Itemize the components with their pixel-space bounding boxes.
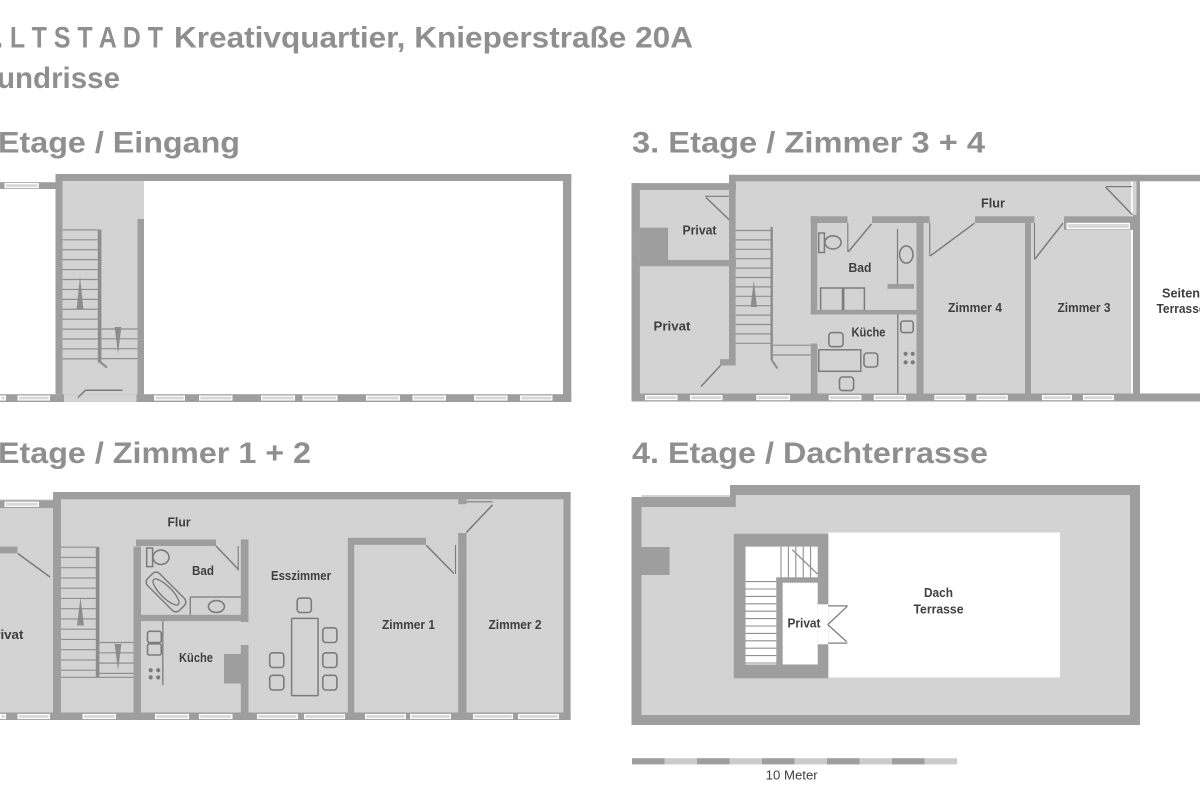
svg-text:undrisse: undrisse <box>0 62 120 95</box>
svg-text:Privat: Privat <box>654 319 692 334</box>
svg-text:Kreativquartier, Knieperstraße: Kreativquartier, Knieperstraße 20A <box>174 22 693 55</box>
svg-text:Privat: Privat <box>788 616 822 631</box>
svg-text:10 Meter: 10 Meter <box>766 768 819 783</box>
svg-text:Terrasse: Terrasse <box>914 602 964 617</box>
svg-text:Küche: Küche <box>852 325 886 340</box>
svg-text:4. Etage / Dachterrasse: 4. Etage / Dachterrasse <box>632 437 988 470</box>
svg-text:Bad: Bad <box>849 260 872 275</box>
svg-text:Esszimmer: Esszimmer <box>271 568 331 583</box>
svg-text:Etage / Eingang: Etage / Eingang <box>0 127 240 160</box>
svg-text:Privat: Privat <box>683 222 718 237</box>
svg-text:Bad: Bad <box>192 563 214 578</box>
svg-text:Terrasse: Terrasse <box>1157 301 1200 316</box>
svg-text:. L T S T A D T: . L T S T A D T <box>0 22 163 55</box>
svg-text:Seiten: Seiten <box>1162 286 1200 301</box>
svg-text:Etage / Zimmer 1 + 2: Etage / Zimmer 1 + 2 <box>0 437 311 470</box>
svg-text:3. Etage / Zimmer 3 + 4: 3. Etage / Zimmer 3 + 4 <box>632 127 985 160</box>
svg-text:Flur: Flur <box>981 196 1005 211</box>
svg-text:Dach: Dach <box>924 585 953 600</box>
svg-text:Zimmer 4: Zimmer 4 <box>948 300 1003 315</box>
svg-text:Küche: Küche <box>179 650 213 665</box>
svg-text:Zimmer 2: Zimmer 2 <box>489 617 542 632</box>
svg-text:Privat: Privat <box>0 627 24 642</box>
svg-text:Zimmer 3: Zimmer 3 <box>1058 300 1111 315</box>
svg-text:Flur: Flur <box>168 515 191 530</box>
svg-text:Zimmer 1: Zimmer 1 <box>382 617 435 632</box>
